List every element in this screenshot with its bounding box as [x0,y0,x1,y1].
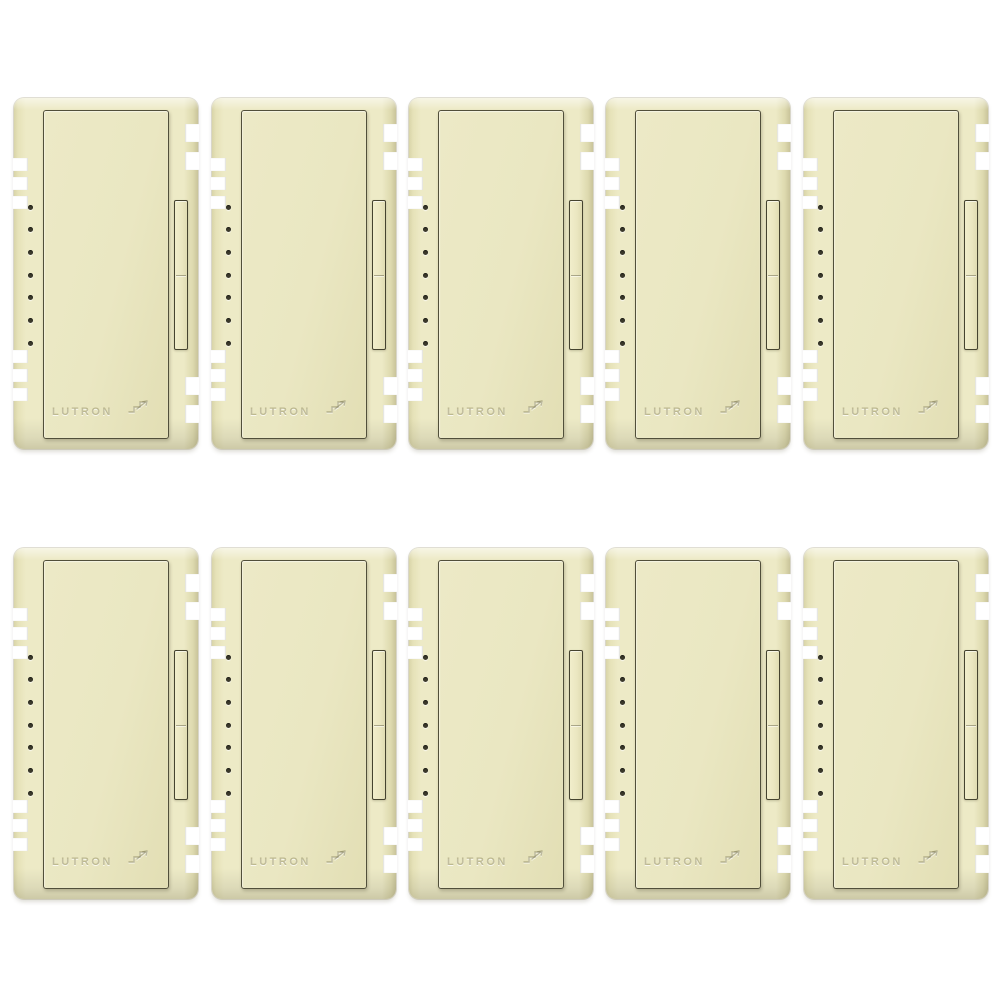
led-dot [620,273,625,278]
frame-notch [408,838,423,851]
led-dot [818,205,823,210]
frame-notch [777,602,791,620]
frame-notch [211,608,226,621]
frame-notch [185,405,199,423]
led-dot [620,205,625,210]
frame-notch [185,827,199,845]
led-dot [226,205,231,210]
stairs-dimmer-icon [324,847,350,865]
led-dot [620,768,625,773]
led-dot [226,318,231,323]
brand-label: LUTRON [250,406,311,418]
frame-notch [185,574,199,592]
led-dot [423,791,428,796]
led-dot [423,341,428,346]
frame-notch [408,608,423,621]
frame-notch [803,177,818,190]
frame-notch [408,369,423,382]
dimmer-color-kit-unit: LUTRON [212,98,396,449]
stairs-dimmer-icon [916,847,942,865]
frame-notch [383,377,397,395]
frame-notch [13,646,28,659]
led-dot [226,273,231,278]
frame-notch [975,152,989,170]
dimmer-color-kit-unit: LUTRON [14,548,198,899]
frame-notch [605,177,620,190]
stairs-dimmer-icon [521,397,547,415]
led-dot [226,768,231,773]
stairs-dimmer-icon [916,397,942,415]
frame-notch [975,574,989,592]
led-dot [226,250,231,255]
frame-notch [803,800,818,813]
led-dot [423,700,428,705]
frame-notch [580,124,594,142]
dimmer-color-kit-unit: LUTRON [804,98,988,449]
frame-notch [211,196,226,209]
stairs-dimmer-icon [126,847,152,865]
dimmer-color-kit-unit: LUTRON [606,98,790,449]
frame-notch [580,377,594,395]
led-dot [28,341,33,346]
frame-notch [185,855,199,873]
brand-label: LUTRON [644,406,705,418]
frame-notch [13,369,28,382]
led-dot [818,273,823,278]
frame-notch [211,646,226,659]
frame-notch [580,152,594,170]
frame-notch [13,800,28,813]
led-dot [620,318,625,323]
frame-notch [13,627,28,640]
frame-notch [605,369,620,382]
stairs-dimmer-icon [521,847,547,865]
brand-label: LUTRON [447,406,508,418]
frame-notch [777,827,791,845]
frame-notch [383,827,397,845]
led-dot [226,700,231,705]
led-dot [620,700,625,705]
frame-notch [211,369,226,382]
led-dot [423,250,428,255]
frame-notch [13,177,28,190]
dimmer-slider [372,200,386,350]
brand-label: LUTRON [52,406,113,418]
frame-notch [580,827,594,845]
frame-notch [211,158,226,171]
dimmer-slider [569,650,583,800]
led-dot [28,273,33,278]
led-dot [620,341,625,346]
led-dot [423,768,428,773]
frame-notch [803,388,818,401]
frame-notch [383,855,397,873]
frame-notch [803,350,818,363]
brand-label: LUTRON [842,856,903,868]
frame-notch [211,388,226,401]
frame-notch [580,405,594,423]
led-dot [423,723,428,728]
dimmer-color-kit-unit: LUTRON [409,548,593,899]
led-dot [620,723,625,728]
dimmer-color-kit-unit: LUTRON [212,548,396,899]
led-dot [818,318,823,323]
dimmer-slider [766,650,780,800]
dimmer-color-kit-unit: LUTRON [409,98,593,449]
frame-notch [211,838,226,851]
frame-notch [605,646,620,659]
dimmer-paddle [43,110,169,439]
frame-notch [803,369,818,382]
dimmer-color-kit-unit: LUTRON [804,548,988,899]
led-dot [28,250,33,255]
frame-notch [408,388,423,401]
brand-label: LUTRON [644,856,705,868]
stairs-dimmer-icon [126,397,152,415]
frame-notch [185,124,199,142]
dimmer-paddle [43,560,169,889]
frame-notch [975,602,989,620]
led-dot [28,318,33,323]
frame-notch [383,124,397,142]
frame-notch [383,602,397,620]
product-photo: LUTRON LUTRON [0,0,1000,1000]
frame-notch [13,838,28,851]
frame-notch [975,377,989,395]
frame-notch [13,158,28,171]
frame-notch [211,800,226,813]
led-dot [818,723,823,728]
frame-notch [803,158,818,171]
frame-notch [605,158,620,171]
led-dot [423,205,428,210]
frame-notch [408,158,423,171]
frame-notch [408,646,423,659]
frame-notch [605,196,620,209]
brand-label: LUTRON [250,856,311,868]
led-dot [28,205,33,210]
led-dot [818,791,823,796]
dimmer-paddle [635,110,761,439]
led-dot [226,655,231,660]
led-dot [818,250,823,255]
dimmer-slider [964,200,978,350]
frame-notch [13,196,28,209]
led-dot [620,250,625,255]
frame-notch [777,152,791,170]
dimmer-slider [372,650,386,800]
frame-notch [605,627,620,640]
frame-notch [185,377,199,395]
frame-notch [605,838,620,851]
frame-notch [803,838,818,851]
frame-notch [211,819,226,832]
dimmer-paddle [833,110,959,439]
led-dot [818,341,823,346]
frame-notch [975,855,989,873]
led-dot [28,768,33,773]
frame-notch [580,574,594,592]
frame-notch [975,124,989,142]
frame-notch [803,819,818,832]
led-dot [226,341,231,346]
led-dot [28,791,33,796]
stairs-dimmer-icon [718,847,744,865]
dimmer-slider [174,200,188,350]
frame-notch [580,602,594,620]
led-dot [818,768,823,773]
frame-notch [803,646,818,659]
brand-label: LUTRON [52,856,113,868]
frame-notch [803,196,818,209]
dimmer-slider [569,200,583,350]
frame-notch [605,819,620,832]
frame-notch [605,608,620,621]
frame-notch [211,627,226,640]
frame-notch [13,350,28,363]
dimmer-paddle [241,560,367,889]
frame-notch [605,388,620,401]
led-dot [423,318,428,323]
frame-notch [383,574,397,592]
led-dot [28,700,33,705]
dimmer-slider [766,200,780,350]
frame-notch [605,350,620,363]
frame-notch [408,627,423,640]
dimmer-paddle [833,560,959,889]
frame-notch [408,350,423,363]
stairs-dimmer-icon [324,397,350,415]
frame-notch [777,405,791,423]
led-dot [28,723,33,728]
frame-notch [408,177,423,190]
dimmer-paddle [635,560,761,889]
frame-notch [580,855,594,873]
dimmer-slider [174,650,188,800]
dimmer-paddle [438,110,564,439]
led-dot [423,655,428,660]
frame-notch [13,819,28,832]
frame-notch [383,152,397,170]
frame-notch [975,827,989,845]
frame-notch [777,124,791,142]
frame-notch [13,608,28,621]
frame-notch [408,819,423,832]
led-dot [620,791,625,796]
led-dot [226,723,231,728]
brand-label: LUTRON [447,856,508,868]
dimmer-paddle [438,560,564,889]
frame-notch [975,405,989,423]
frame-notch [185,602,199,620]
led-dot [818,700,823,705]
dimmer-color-kit-unit: LUTRON [14,98,198,449]
frame-notch [408,800,423,813]
frame-notch [185,152,199,170]
frame-notch [803,627,818,640]
led-dot [423,273,428,278]
dimmer-color-kit-unit: LUTRON [606,548,790,899]
frame-notch [803,608,818,621]
brand-label: LUTRON [842,406,903,418]
frame-notch [408,196,423,209]
frame-notch [211,177,226,190]
frame-notch [777,855,791,873]
frame-notch [211,350,226,363]
led-dot [226,791,231,796]
frame-notch [383,405,397,423]
led-dot [620,655,625,660]
dimmer-paddle [241,110,367,439]
led-dot [818,655,823,660]
dimmer-slider [964,650,978,800]
stairs-dimmer-icon [718,397,744,415]
frame-notch [777,377,791,395]
frame-notch [13,388,28,401]
frame-notch [777,574,791,592]
frame-notch [605,800,620,813]
led-dot [28,655,33,660]
